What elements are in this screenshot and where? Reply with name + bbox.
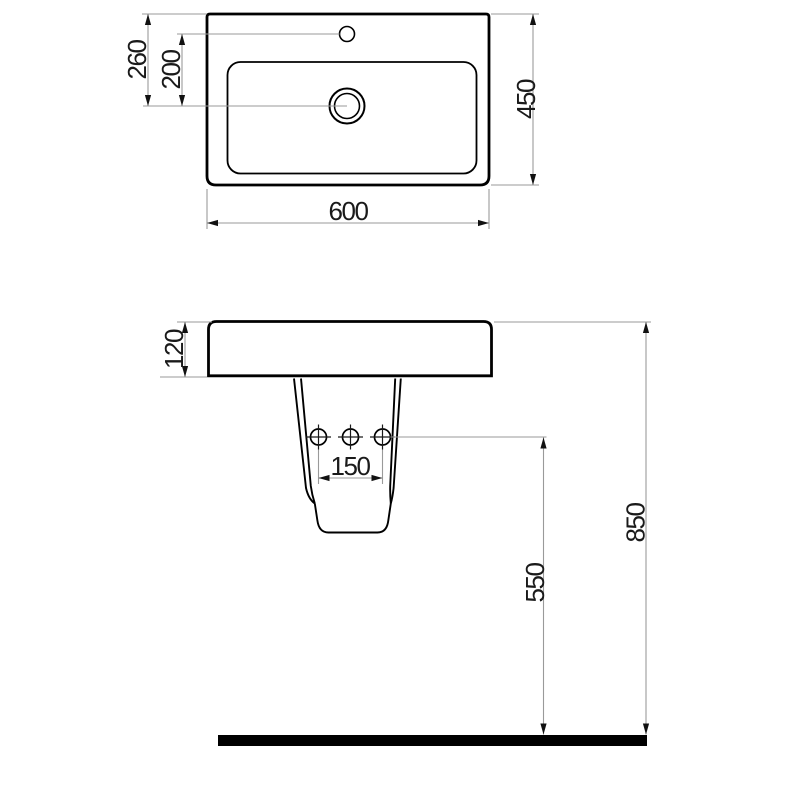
dimension-basin-height: 120 bbox=[159, 322, 189, 377]
arrow-left-icon bbox=[207, 220, 218, 226]
arrow-up-icon bbox=[643, 322, 649, 333]
basin-front-outline bbox=[209, 322, 492, 376]
arrow-up-icon bbox=[540, 438, 546, 449]
mounting-hole bbox=[306, 425, 331, 450]
dimension-label: 200 bbox=[156, 50, 186, 90]
dimension-label: 850 bbox=[621, 503, 651, 543]
washbasin-technical-drawing: 260 200 450 600 bbox=[0, 0, 800, 800]
arrow-down-icon bbox=[643, 724, 649, 735]
dimension-label: 600 bbox=[329, 196, 369, 226]
mounting-hole bbox=[338, 425, 363, 450]
arrow-down-icon bbox=[145, 95, 151, 106]
dimension-holes-to-floor: 550 bbox=[520, 438, 550, 735]
arrow-up-icon bbox=[145, 14, 151, 25]
dimension-label: 260 bbox=[122, 40, 152, 80]
arrow-right-icon bbox=[372, 475, 383, 481]
arrow-down-icon bbox=[540, 724, 546, 735]
front-view: 120 150 550 850 bbox=[159, 322, 651, 747]
dimension-back-edge-to-drain: 260 bbox=[122, 14, 152, 106]
dimension-overall-height: 850 bbox=[621, 322, 651, 735]
dimension-label: 550 bbox=[520, 563, 550, 603]
dimension-overall-width: 600 bbox=[207, 196, 489, 226]
arrow-left-icon bbox=[319, 475, 330, 481]
dimension-overall-depth: 450 bbox=[511, 14, 541, 185]
technical-drawing-page: 260 200 450 600 bbox=[0, 0, 800, 800]
dimension-label: 120 bbox=[159, 329, 189, 369]
arrow-up-icon bbox=[179, 34, 185, 45]
arrow-down-icon bbox=[530, 174, 536, 185]
arrow-right-icon bbox=[478, 220, 489, 226]
arrow-up-icon bbox=[530, 14, 536, 25]
dimension-label: 150 bbox=[331, 451, 371, 481]
floor-line bbox=[218, 735, 647, 746]
pedestal-base bbox=[315, 504, 391, 533]
arrow-down-icon bbox=[179, 95, 185, 106]
dimension-label: 450 bbox=[511, 79, 541, 119]
dimension-hole-spacing: 150 bbox=[319, 451, 383, 481]
dimension-faucet-to-drain: 200 bbox=[156, 34, 186, 106]
top-view: 260 200 450 600 bbox=[122, 14, 541, 229]
faucet-hole bbox=[340, 27, 355, 42]
basin-outer-rim bbox=[207, 14, 489, 185]
